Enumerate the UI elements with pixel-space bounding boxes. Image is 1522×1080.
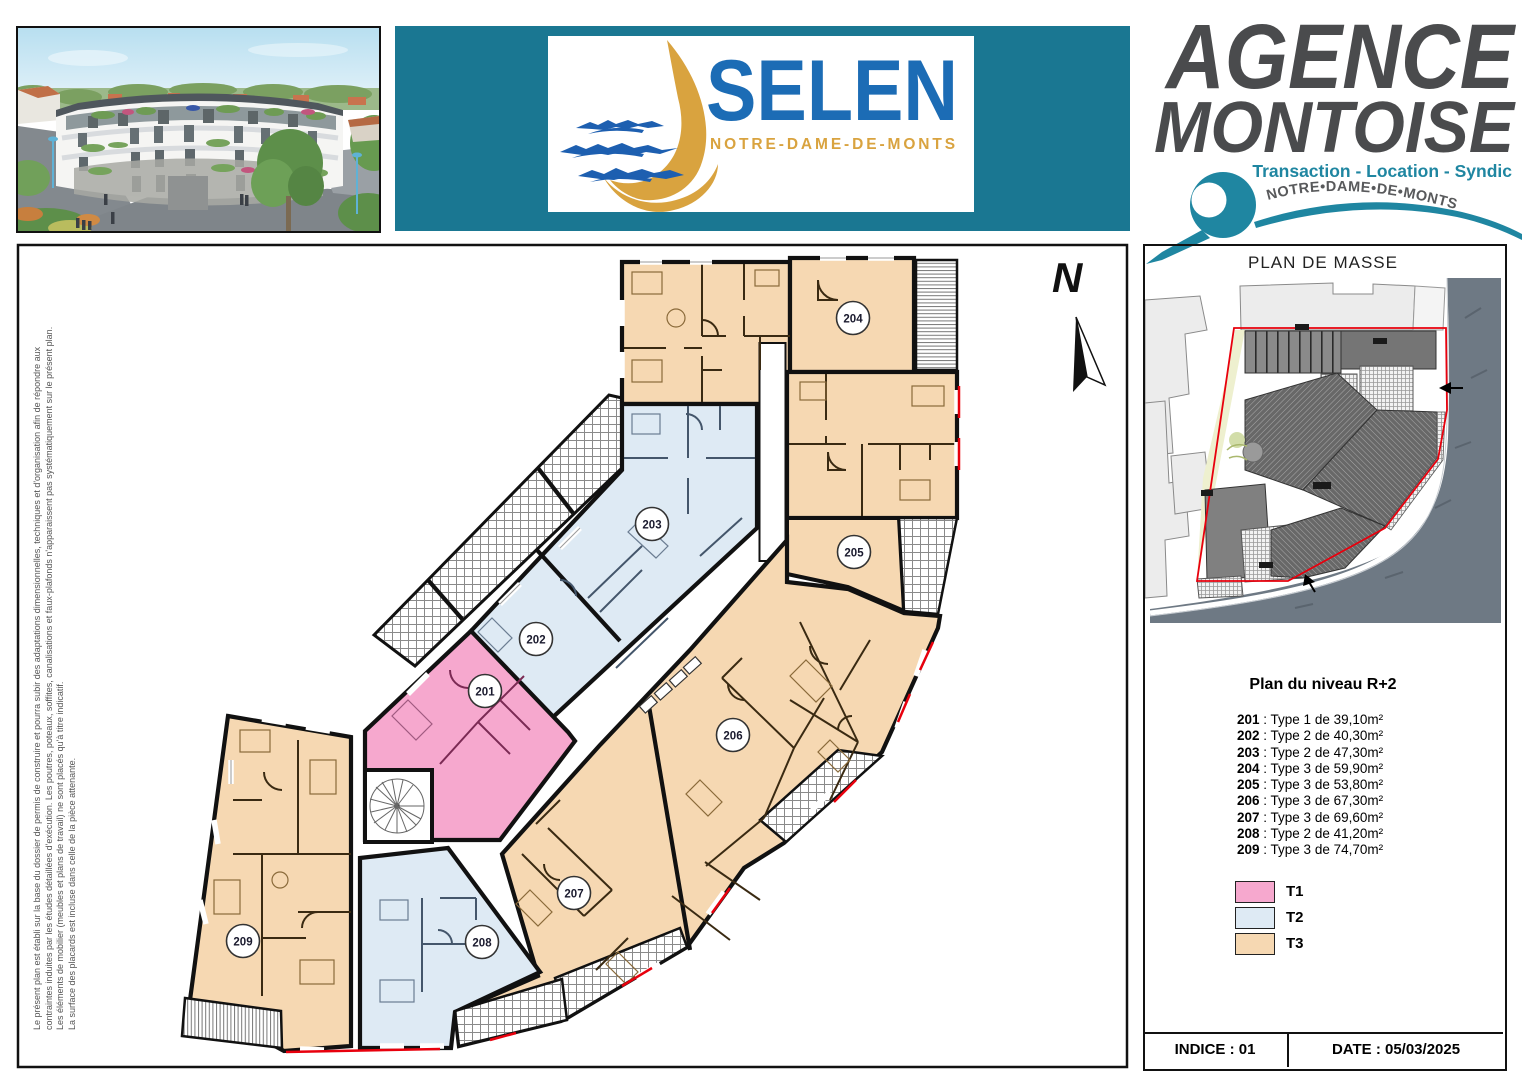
svg-text:201: 201 [475, 687, 495, 699]
svg-text:205: 205 [844, 548, 864, 560]
svg-text:206: 206 [723, 731, 742, 743]
svg-text:N: N [1052, 254, 1084, 301]
svg-text:209: 209 [233, 937, 252, 949]
svg-text:202: 202 [526, 635, 545, 647]
svg-text:204: 204 [843, 314, 863, 326]
svg-text:208: 208 [472, 938, 492, 950]
svg-text:207: 207 [564, 889, 583, 901]
svg-text:203: 203 [642, 520, 661, 532]
